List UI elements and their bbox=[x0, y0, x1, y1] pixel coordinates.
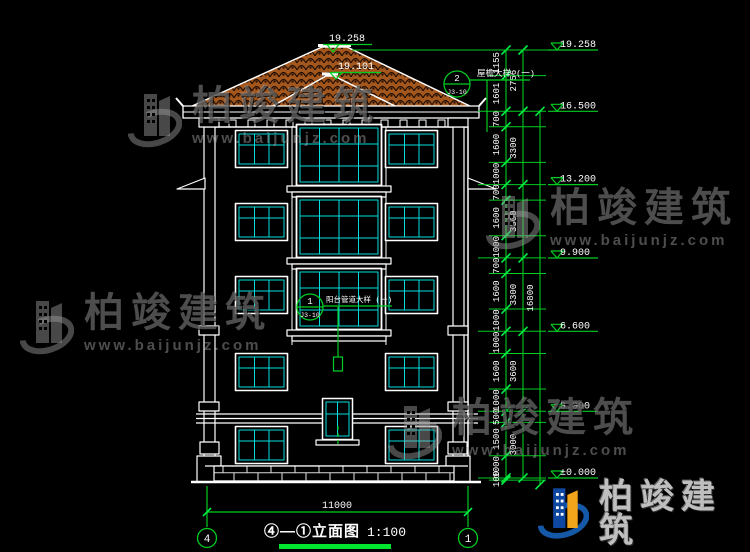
callout-balcony-ref: J3-10 bbox=[300, 312, 320, 319]
dim-value: 1000 bbox=[492, 332, 502, 354]
title-underline bbox=[279, 544, 391, 549]
dim-value: 16800 bbox=[526, 284, 536, 311]
bottom-dim-text: 11000 bbox=[322, 501, 352, 512]
dim-value: 1000 bbox=[492, 236, 502, 258]
side-canopy-left bbox=[177, 178, 205, 189]
drawing-title: ④—①立面图1:100 bbox=[240, 520, 430, 549]
dim-value: 700 bbox=[492, 184, 502, 200]
peak-level-text: 19.258 bbox=[329, 34, 365, 45]
level-mark-text: 6.600 bbox=[560, 321, 590, 332]
dim-value: 3300 bbox=[509, 210, 519, 232]
grid-bubble-left-text: 4 bbox=[204, 534, 211, 546]
dim-value: 3300 bbox=[509, 137, 519, 159]
building-elevation bbox=[176, 46, 496, 483]
base-course bbox=[214, 466, 454, 482]
dim-value: 1600 bbox=[492, 280, 502, 302]
dim-value: 700 bbox=[492, 258, 502, 274]
sill-band-3f bbox=[287, 330, 391, 341]
drawing-canvas: 1155160170016001000700160010007001600100… bbox=[0, 0, 750, 552]
level-mark-text: 16.500 bbox=[560, 101, 596, 112]
dim-value: 1601 bbox=[492, 83, 502, 105]
dim-value: 1600 bbox=[492, 134, 502, 156]
dim-value: 500 bbox=[492, 409, 502, 425]
dim-value: 1000 bbox=[492, 163, 502, 185]
sill-band-4f bbox=[287, 258, 391, 269]
level-mark-text: ±0.000 bbox=[560, 468, 596, 479]
dim-value: 700 bbox=[492, 111, 502, 127]
callout-eave-number: 2 bbox=[454, 74, 459, 84]
callout-balcony-number: 1 bbox=[307, 297, 312, 307]
sill-band-5f bbox=[287, 186, 391, 197]
level-mark-text: 13.200 bbox=[560, 175, 596, 186]
dim-value: 1000 bbox=[492, 309, 502, 331]
dim-value: 3000 bbox=[509, 434, 519, 456]
dim-value: 1500 bbox=[492, 428, 502, 450]
callout-eave-ref: J3-10 bbox=[447, 89, 467, 96]
dim-value: 1600 bbox=[492, 360, 502, 382]
dim-value: 3600 bbox=[509, 360, 519, 382]
dim-value: 100 bbox=[492, 471, 502, 487]
ridge2-level-text: 19.101 bbox=[338, 62, 374, 73]
dim-value: 1600 bbox=[492, 207, 502, 229]
title-text: ④—①立面图 bbox=[264, 523, 360, 540]
callout-eave-label: 屋檐大样 (一) bbox=[477, 68, 535, 79]
dim-value: 1000 bbox=[492, 389, 502, 411]
level-mark-text: 3.000 bbox=[560, 401, 590, 412]
grid-bubble-right-text: 1 bbox=[465, 534, 472, 546]
cad-elevation-drawing: 1155160170016001000700160010007001600100… bbox=[0, 0, 750, 552]
title-scale: 1:100 bbox=[367, 525, 406, 540]
level-mark-text: 19.258 bbox=[560, 40, 596, 51]
level-mark-text: 9.900 bbox=[560, 248, 590, 259]
dim-value: 3300 bbox=[509, 284, 519, 306]
